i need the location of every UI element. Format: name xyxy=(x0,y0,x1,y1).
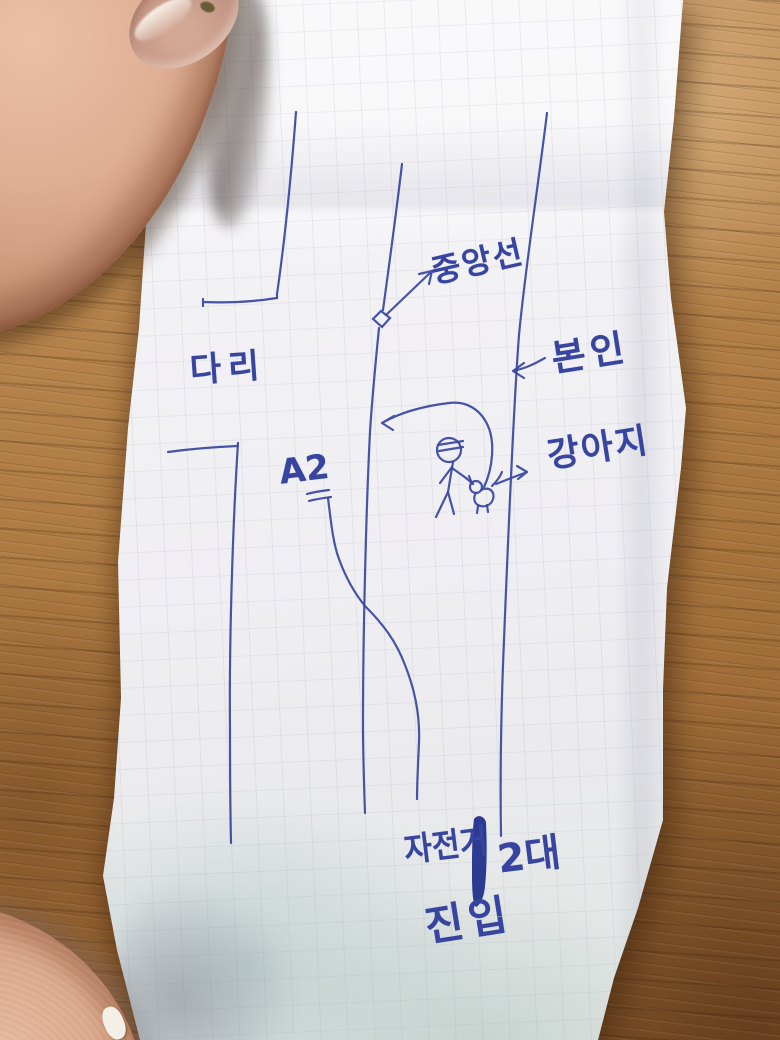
center-line xyxy=(383,164,402,310)
bicycle-path-curve xyxy=(328,498,419,799)
centerline-arrow xyxy=(386,271,432,315)
dog-figure xyxy=(469,472,502,513)
label-bicycle-count: 2대 xyxy=(494,821,563,884)
bridge-corner-upper-left xyxy=(203,112,296,306)
center-line-lower xyxy=(363,328,379,813)
label-bridge: 다리 xyxy=(188,338,268,392)
road-edge-left xyxy=(230,443,238,843)
curb-line-left xyxy=(168,446,237,452)
stick-person xyxy=(436,438,466,517)
label-a2: A2 xyxy=(277,447,331,493)
label-bicycle: 자전거 xyxy=(401,814,490,872)
photo-of-sketch: 중앙선 다리 본인 강아지 A2 자전거 2대 진입 xyxy=(0,0,780,1040)
